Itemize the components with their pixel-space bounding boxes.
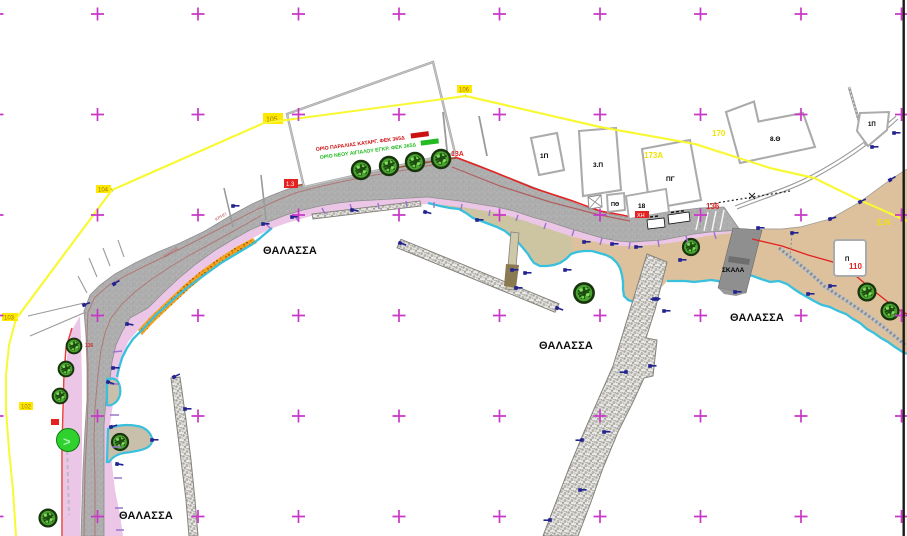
- svg-text:ΘΑΛΑΣΣΑ: ΘΑΛΑΣΣΑ: [119, 510, 173, 522]
- svg-text:Ε.Ν: Ε.Ν: [877, 218, 891, 227]
- svg-text:136: 136: [85, 343, 94, 349]
- svg-text:3.Π: 3.Π: [593, 162, 603, 169]
- svg-text:13Α: 13Α: [451, 151, 464, 158]
- svg-text:ΘΑΛΑΣΣΑ: ΘΑΛΑΣΣΑ: [539, 340, 593, 352]
- svg-text:8.Θ: 8.Θ: [770, 136, 780, 143]
- svg-text:ΠΓ: ΠΓ: [666, 176, 675, 183]
- svg-text:ΣΚΑΛΑ: ΣΚΑΛΑ: [722, 267, 745, 274]
- svg-text:104: 104: [98, 188, 109, 194]
- svg-text:102: 102: [21, 405, 32, 411]
- svg-text:1Π: 1Π: [540, 153, 549, 160]
- svg-text:ΘΑΛΑΣΣΑ: ΘΑΛΑΣΣΑ: [730, 312, 784, 324]
- svg-text:170: 170: [712, 129, 726, 138]
- svg-text:ΘΑΛΑΣΣΑ: ΘΑΛΑΣΣΑ: [263, 245, 317, 257]
- svg-text:ΠΘ: ΠΘ: [611, 202, 620, 208]
- svg-text:1Π: 1Π: [868, 122, 876, 128]
- svg-text:103: 103: [4, 316, 15, 322]
- svg-text:>: >: [63, 434, 71, 449]
- svg-text:18: 18: [638, 203, 646, 210]
- svg-text:136: 136: [706, 202, 720, 211]
- svg-text:ΧΗ: ΧΗ: [637, 213, 645, 219]
- svg-text:173Α: 173Α: [644, 151, 663, 160]
- svg-text:106: 106: [459, 88, 470, 94]
- svg-text:1.3: 1.3: [286, 182, 295, 188]
- svg-text:110: 110: [849, 262, 862, 271]
